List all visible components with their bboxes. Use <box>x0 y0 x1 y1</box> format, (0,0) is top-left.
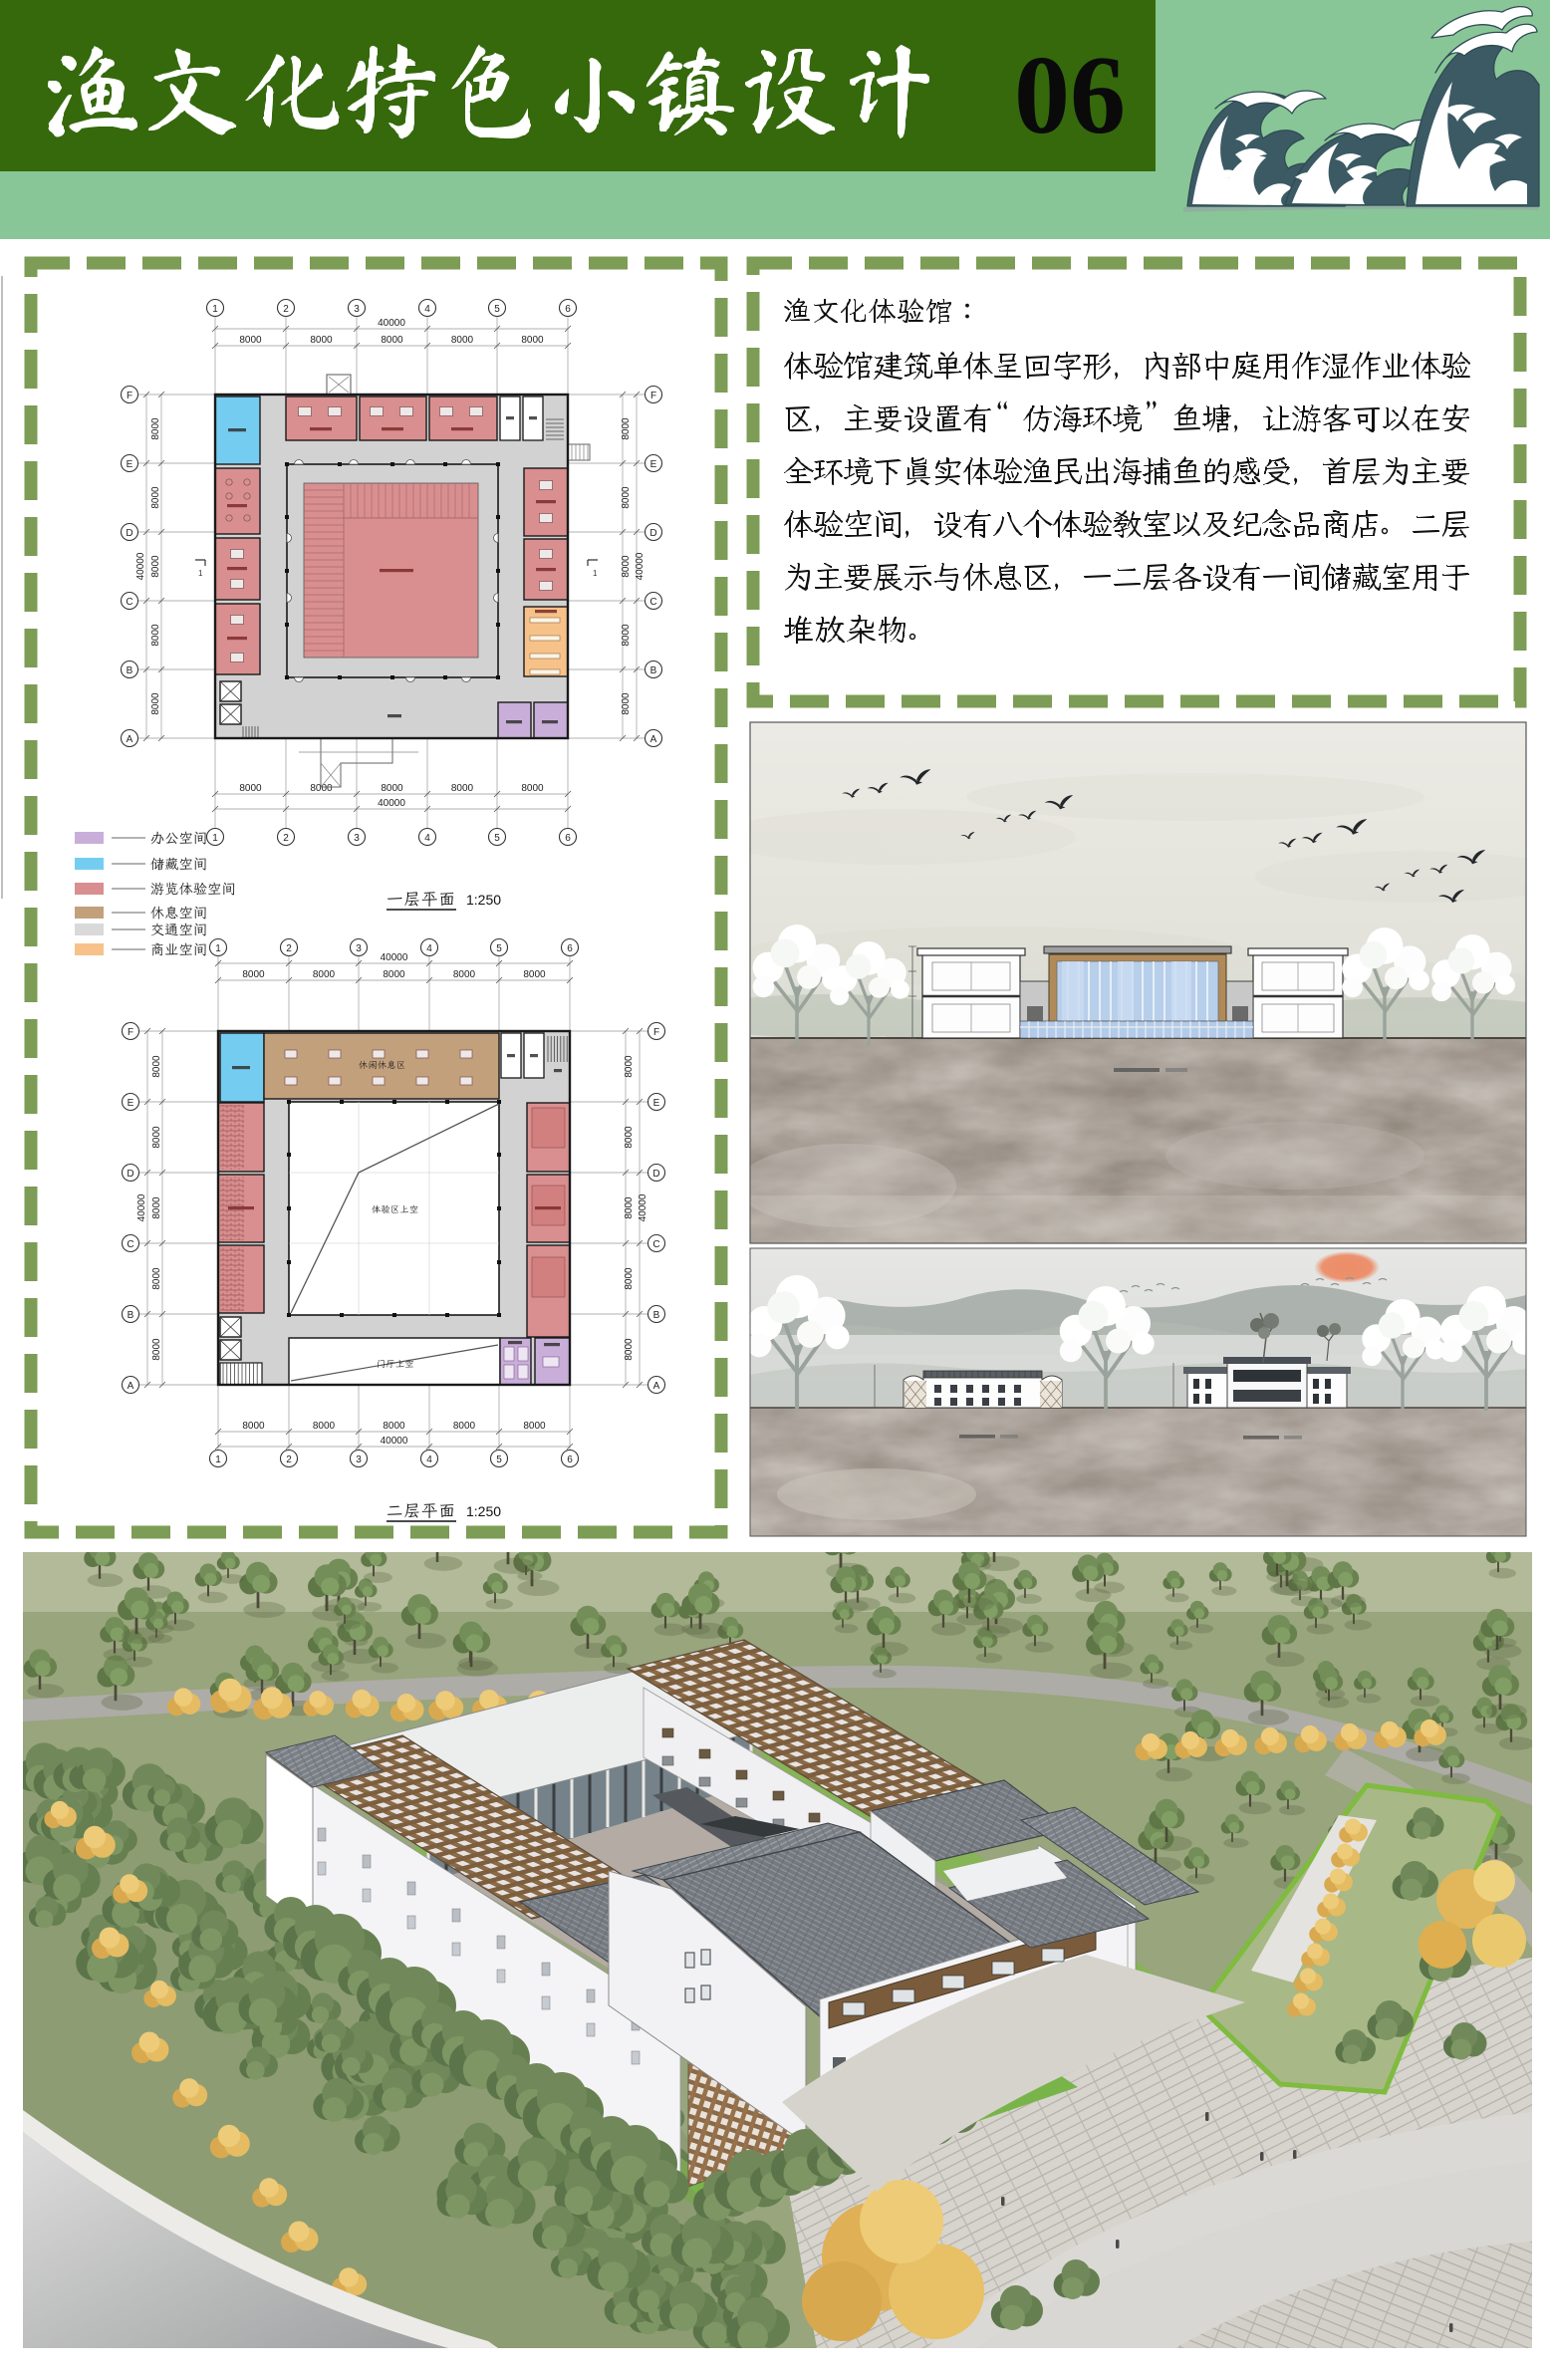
svg-text:6: 6 <box>567 1454 573 1465</box>
svg-text:5: 5 <box>494 833 500 844</box>
svg-text:C: C <box>649 597 656 608</box>
svg-text:8000: 8000 <box>383 969 405 980</box>
svg-text:A: A <box>653 1381 660 1392</box>
svg-text:F: F <box>653 1027 659 1038</box>
svg-text:8000: 8000 <box>621 417 632 440</box>
svg-text:1: 1 <box>212 833 218 844</box>
svg-text:2: 2 <box>283 833 289 844</box>
svg-text:8000: 8000 <box>624 1055 635 1078</box>
svg-text:C: C <box>126 597 132 608</box>
svg-text:D: D <box>649 528 656 539</box>
svg-text:40000: 40000 <box>378 318 405 329</box>
svg-text:2: 2 <box>286 943 292 954</box>
svg-text:E: E <box>127 459 133 470</box>
svg-text:B: B <box>128 1310 134 1321</box>
svg-text:E: E <box>650 459 657 470</box>
svg-text:D: D <box>652 1169 659 1180</box>
svg-text:8000: 8000 <box>621 624 632 647</box>
svg-text:8000: 8000 <box>310 783 333 794</box>
svg-text:8000: 8000 <box>624 1126 635 1149</box>
svg-text:8000: 8000 <box>150 417 161 440</box>
svg-text:A: A <box>650 734 657 745</box>
svg-text:E: E <box>653 1098 660 1109</box>
svg-text:8000: 8000 <box>150 692 161 715</box>
svg-text:8000: 8000 <box>150 624 161 647</box>
svg-text:4: 4 <box>426 1454 432 1465</box>
svg-text:8000: 8000 <box>521 783 544 794</box>
svg-text:8000: 8000 <box>383 1421 405 1432</box>
svg-text:5: 5 <box>496 1454 502 1465</box>
svg-text:40000: 40000 <box>136 1193 147 1221</box>
svg-text:8000: 8000 <box>521 335 544 346</box>
svg-text:A: A <box>128 1381 134 1392</box>
svg-text:1: 1 <box>593 569 598 578</box>
svg-text:3: 3 <box>354 833 360 844</box>
svg-text:A: A <box>127 734 133 745</box>
svg-text:3: 3 <box>356 1454 362 1465</box>
svg-text:40000: 40000 <box>638 1193 648 1221</box>
svg-text:8000: 8000 <box>150 486 161 509</box>
svg-text:B: B <box>650 665 657 676</box>
svg-text:5: 5 <box>494 304 500 315</box>
svg-text:8000: 8000 <box>381 783 403 794</box>
svg-text:8000: 8000 <box>381 335 403 346</box>
svg-text:06: 06 <box>1014 34 1126 157</box>
svg-text:D: D <box>126 528 132 539</box>
svg-text:8000: 8000 <box>239 783 262 794</box>
svg-text:4: 4 <box>426 943 432 954</box>
svg-text:8000: 8000 <box>313 969 336 980</box>
svg-text:B: B <box>653 1310 660 1321</box>
svg-text:F: F <box>650 391 656 401</box>
svg-text:C: C <box>652 1239 659 1250</box>
svg-text:1:250: 1:250 <box>466 1503 501 1519</box>
svg-text:8000: 8000 <box>151 1126 162 1149</box>
svg-text:C: C <box>127 1239 133 1250</box>
svg-text:1: 1 <box>212 304 218 315</box>
svg-text:F: F <box>128 1027 133 1038</box>
svg-text:1: 1 <box>215 1454 221 1465</box>
svg-text:8000: 8000 <box>242 969 265 980</box>
svg-text:8000: 8000 <box>310 335 333 346</box>
svg-text:8000: 8000 <box>621 692 632 715</box>
svg-text:3: 3 <box>356 943 362 954</box>
svg-text:3: 3 <box>354 304 360 315</box>
svg-text:8000: 8000 <box>624 1196 635 1219</box>
svg-text:8000: 8000 <box>624 1267 635 1290</box>
svg-text:8000: 8000 <box>239 335 262 346</box>
svg-text:8000: 8000 <box>150 555 161 578</box>
svg-text:8000: 8000 <box>523 969 546 980</box>
svg-text:40000: 40000 <box>378 798 405 809</box>
svg-text:8000: 8000 <box>151 1055 162 1078</box>
svg-text:2: 2 <box>286 1454 292 1465</box>
svg-text:40000: 40000 <box>635 552 646 580</box>
svg-text:8000: 8000 <box>151 1338 162 1361</box>
svg-text:6: 6 <box>565 833 571 844</box>
svg-text:8000: 8000 <box>624 1338 635 1361</box>
svg-text:40000: 40000 <box>381 952 408 963</box>
svg-text:8000: 8000 <box>523 1421 546 1432</box>
svg-text:4: 4 <box>424 304 430 315</box>
svg-text:40000: 40000 <box>381 1436 408 1447</box>
svg-text:1:250: 1:250 <box>466 892 501 908</box>
svg-text:E: E <box>128 1098 134 1109</box>
svg-text:4: 4 <box>424 833 430 844</box>
svg-text:1: 1 <box>198 569 203 578</box>
svg-text:5: 5 <box>496 943 502 954</box>
svg-text:8000: 8000 <box>313 1421 336 1432</box>
svg-text:F: F <box>127 391 132 401</box>
svg-text:2: 2 <box>283 304 289 315</box>
svg-text:8000: 8000 <box>621 555 632 578</box>
svg-text:8000: 8000 <box>242 1421 265 1432</box>
svg-text:8000: 8000 <box>621 486 632 509</box>
svg-text:6: 6 <box>567 943 573 954</box>
svg-text:1: 1 <box>215 943 221 954</box>
svg-text:8000: 8000 <box>451 783 474 794</box>
svg-text:8000: 8000 <box>453 1421 476 1432</box>
svg-text:6: 6 <box>565 304 571 315</box>
svg-text:8000: 8000 <box>453 969 476 980</box>
svg-text:B: B <box>127 665 133 676</box>
svg-text:D: D <box>127 1169 133 1180</box>
svg-text:40000: 40000 <box>135 552 146 580</box>
svg-text:8000: 8000 <box>151 1267 162 1290</box>
svg-text:8000: 8000 <box>451 335 474 346</box>
svg-text:8000: 8000 <box>151 1196 162 1219</box>
